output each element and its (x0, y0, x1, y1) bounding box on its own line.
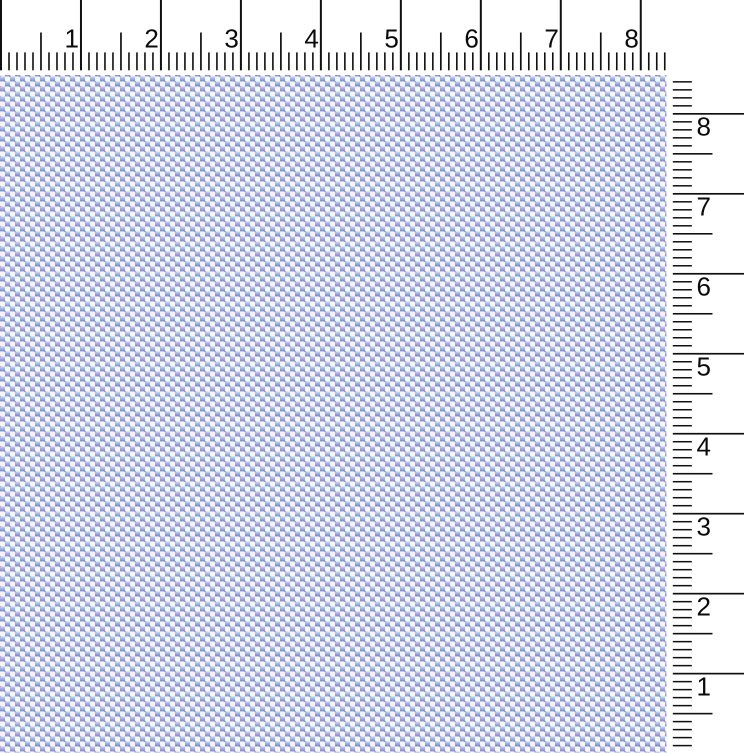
svg-text:6: 6 (464, 23, 478, 53)
svg-text:1: 1 (65, 23, 79, 53)
svg-text:5: 5 (697, 351, 711, 381)
svg-text:5: 5 (384, 23, 398, 53)
svg-text:7: 7 (697, 192, 711, 222)
svg-text:7: 7 (544, 23, 558, 53)
svg-text:3: 3 (697, 511, 711, 541)
svg-text:1: 1 (697, 671, 711, 701)
svg-text:8: 8 (624, 23, 638, 53)
svg-text:8: 8 (697, 112, 711, 142)
svg-text:3: 3 (224, 23, 238, 53)
svg-text:2: 2 (697, 591, 711, 621)
svg-text:4: 4 (697, 431, 711, 461)
svg-text:6: 6 (697, 272, 711, 302)
svg-text:2: 2 (144, 23, 158, 53)
svg-text:4: 4 (304, 23, 318, 53)
